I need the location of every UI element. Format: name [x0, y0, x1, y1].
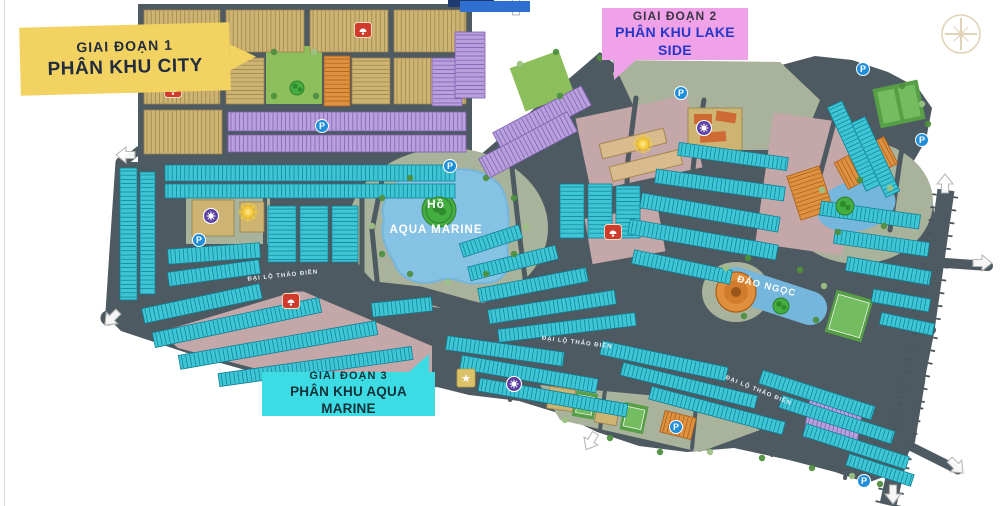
tree	[857, 177, 863, 183]
amenity-icon	[507, 377, 522, 392]
tree	[311, 49, 317, 55]
highway-lot-tick	[931, 350, 935, 351]
school-icon	[355, 23, 372, 38]
greenery-icon	[836, 197, 854, 215]
highway-lot-tick	[919, 408, 923, 409]
greenery-icon	[773, 298, 789, 314]
amenity-icon	[697, 121, 712, 136]
svg-text:P: P	[861, 476, 867, 486]
housing-cluster-p	[455, 32, 485, 98]
tree	[707, 449, 713, 455]
tree	[723, 265, 729, 271]
highway-lot-tick	[946, 249, 950, 250]
highway-lot-tick	[892, 428, 896, 429]
tree	[809, 465, 815, 471]
housing-cluster-c	[268, 206, 296, 262]
phase2-label-lakeside: GIAI ĐOẠN 2 PHÂN KHU LAKE SIDE	[602, 8, 748, 60]
housing-cluster-c	[120, 168, 137, 300]
housing-cluster-t	[144, 110, 222, 154]
tree	[919, 101, 925, 107]
tree	[271, 93, 277, 99]
tree	[759, 455, 765, 461]
tree	[741, 313, 747, 319]
highway-lot-tick	[876, 501, 880, 502]
highway-lot-tick	[920, 401, 924, 402]
tree	[887, 185, 893, 191]
svg-text:P: P	[319, 121, 325, 131]
highway-lot-tick	[942, 280, 946, 281]
masterplan-map: PPPPPPPP★HồAQUA MARINEĐẢO NGỌCĐẠI LỘ THẢ…	[0, 0, 1000, 506]
highway-lot-tick	[907, 359, 911, 360]
highway-lot-tick	[913, 433, 917, 434]
tree	[881, 223, 887, 229]
tree	[821, 283, 827, 289]
svg-text:★: ★	[461, 372, 471, 385]
tree	[849, 473, 855, 479]
tree	[379, 195, 385, 201]
tree	[657, 449, 663, 455]
school-icon	[283, 294, 300, 309]
tree	[553, 49, 559, 55]
amenity-icon	[204, 209, 219, 224]
highway-lot-tick	[899, 397, 903, 398]
parking-icon: P	[316, 120, 329, 133]
highway-lot-tick	[938, 306, 942, 307]
tree	[511, 195, 517, 201]
housing-cluster-c	[560, 184, 584, 238]
parking-icon: P	[916, 134, 929, 147]
highway-lot-tick	[922, 264, 926, 265]
highway-lot-tick	[930, 207, 934, 208]
highway-lot-tick	[926, 376, 930, 377]
tree	[523, 223, 529, 229]
highway-lot-tick	[929, 220, 933, 221]
highway-lot-tick	[912, 333, 916, 334]
highway-lot-tick	[904, 372, 908, 373]
parking-icon: P	[858, 475, 871, 488]
map-text-label: Hồ	[427, 197, 445, 211]
highway-lot-tick	[923, 389, 927, 390]
tree	[925, 121, 931, 127]
parking-icon: P	[444, 160, 457, 173]
tree	[483, 271, 489, 277]
tree	[745, 255, 751, 261]
star-icon: ★	[457, 369, 475, 387]
top-sign-fragment-blue	[460, 1, 530, 12]
road-direction-arrow	[579, 429, 602, 453]
highway-lot-tick	[902, 384, 906, 385]
tree	[511, 251, 517, 257]
greenery-icon	[290, 81, 304, 95]
svg-text:P: P	[447, 161, 453, 171]
street	[908, 445, 958, 470]
highway-lot-tick	[895, 416, 899, 417]
housing-cluster-p	[228, 135, 466, 152]
housing-cluster-c	[332, 206, 358, 262]
highway-lot-tick	[944, 267, 948, 268]
parking-icon: P	[857, 63, 870, 76]
tree	[819, 187, 825, 193]
tree	[271, 49, 277, 55]
tree	[313, 93, 319, 99]
amphitheater-stage	[731, 287, 741, 297]
svg-text:P: P	[860, 64, 866, 74]
highway-lot-tick	[919, 290, 923, 291]
svg-text:P: P	[678, 88, 684, 98]
tree	[557, 93, 563, 99]
svg-text:P: P	[196, 235, 202, 245]
highway-lot-tick	[898, 403, 902, 404]
parking-icon: P	[193, 234, 206, 247]
housing-cluster-o	[324, 56, 350, 106]
highway-lot-tick	[910, 446, 914, 447]
tree	[562, 417, 568, 423]
highway-lot-tick	[936, 319, 940, 320]
housing-cluster-t	[310, 10, 388, 52]
highway-lot-tick	[940, 293, 944, 294]
tree	[899, 83, 905, 89]
tree	[407, 271, 413, 277]
parking-icon: P	[675, 87, 688, 100]
highway-lot-tick	[910, 346, 914, 347]
highway-lot-tick	[915, 316, 919, 317]
sun-icon	[634, 135, 653, 154]
phase1-subtitle: PHÂN KHU CITY	[20, 53, 231, 82]
highway-lot-tick	[916, 420, 920, 421]
highway-lot-tick	[948, 236, 952, 237]
housing-cluster-p	[228, 112, 466, 131]
tree	[445, 279, 451, 285]
school-icon	[605, 225, 622, 240]
highway-lot-tick	[954, 197, 958, 198]
highway-lot-tick	[928, 363, 932, 364]
map-text-label: AQUA MARINE	[390, 224, 483, 236]
housing-cluster-c	[140, 172, 155, 294]
phase3-subtitle: PHÂN KHU AQUA MARINE	[262, 384, 435, 418]
tree	[607, 435, 613, 441]
highway-lot-tick	[950, 223, 954, 224]
highway-lot-tick	[878, 488, 882, 489]
tree	[379, 251, 385, 257]
compass-rose-icon	[942, 15, 980, 53]
tree	[407, 175, 413, 181]
tree	[369, 223, 375, 229]
tree	[835, 229, 841, 235]
tree	[483, 175, 489, 181]
housing-cluster-t	[352, 58, 390, 104]
phase3-title: GIAI ĐOẠN 3	[262, 370, 435, 384]
phase2-title: GIAI ĐOẠN 2	[602, 9, 748, 24]
parking-icon: P	[670, 421, 683, 434]
highway-lot-tick	[952, 210, 956, 211]
tree	[813, 317, 819, 323]
phase2-subtitle: PHÂN KHU LAKE SIDE	[602, 24, 748, 59]
highway-lot-tick	[933, 338, 937, 339]
tree	[797, 267, 803, 273]
highway-lot-tick	[932, 194, 936, 195]
svg-text:P: P	[673, 422, 679, 432]
phase1-label-city: GIAI ĐOẠN 1 PHÂN KHU CITY	[19, 22, 231, 95]
sun-icon	[239, 203, 258, 222]
housing-cluster-c	[165, 184, 455, 198]
phase3-label-aquamarine: GIAI ĐOẠN 3 PHÂN KHU AQUA MARINE	[262, 372, 435, 416]
highway-lot-tick	[927, 233, 931, 234]
svg-text:P: P	[919, 135, 925, 145]
tree	[517, 61, 523, 67]
tree	[877, 481, 883, 487]
housing-cluster-c	[300, 206, 328, 262]
